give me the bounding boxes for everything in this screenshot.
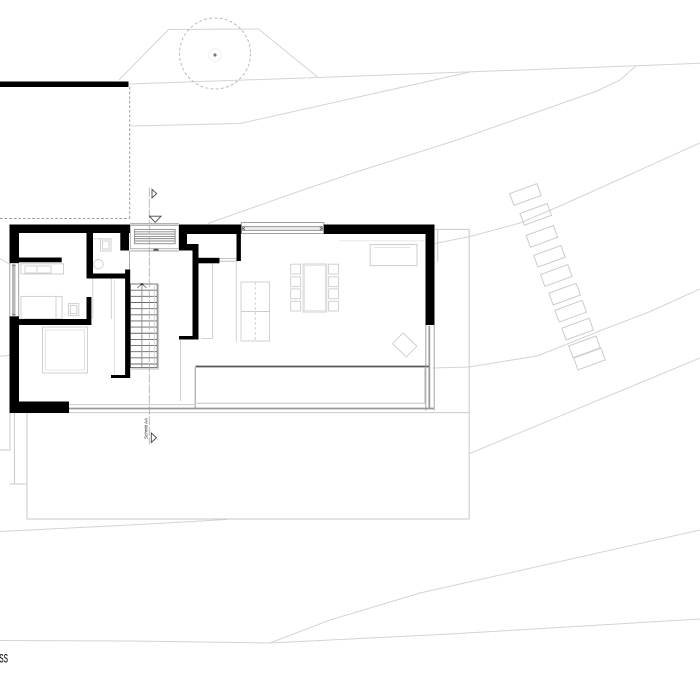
svg-text:Schnitt AA: Schnitt AA xyxy=(144,417,149,439)
svg-text:ss: ss xyxy=(0,648,8,667)
